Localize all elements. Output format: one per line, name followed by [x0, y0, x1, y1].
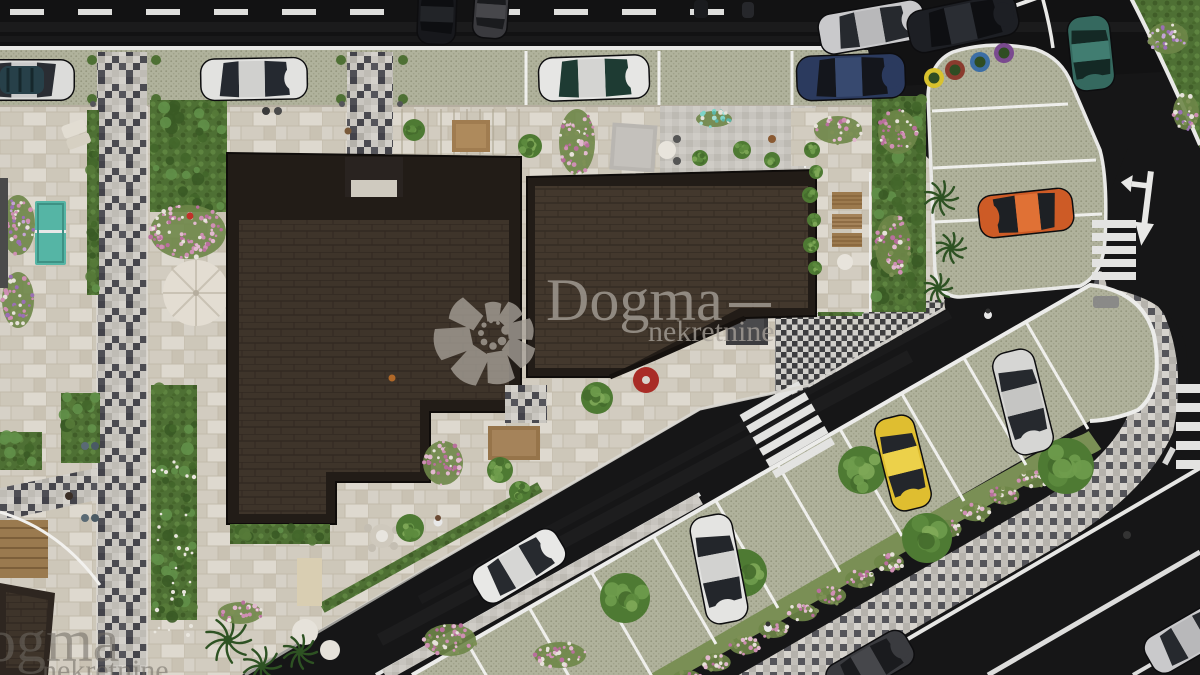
- svg-text:nekretnine: nekretnine: [648, 315, 775, 348]
- svg-text:nekretnine: nekretnine: [42, 654, 169, 675]
